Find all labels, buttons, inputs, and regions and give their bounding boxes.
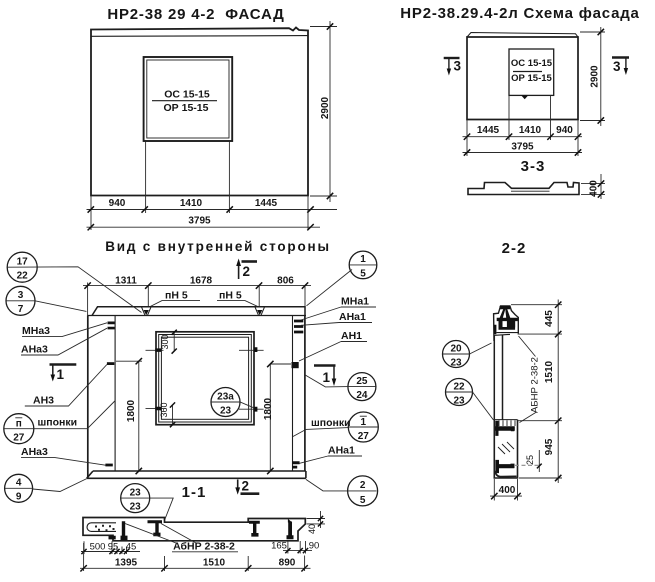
svg-text:1: 1 [57,367,65,382]
svg-text:4: 4 [16,478,22,489]
svg-text:АБНР 2-38-2: АБНР 2-38-2 [530,357,541,413]
svg-text:1-1: 1-1 [182,484,207,501]
svg-text:1: 1 [361,417,367,428]
svg-text:шпонки: шпонки [38,417,78,429]
svg-text:806: 806 [277,276,294,287]
svg-text:2: 2 [360,480,366,491]
svg-text:360: 360 [159,402,169,417]
svg-text:3795: 3795 [188,216,211,227]
svg-text:23: 23 [450,358,462,369]
svg-text:1800: 1800 [263,397,274,420]
svg-text:шпонки: шпонки [311,417,351,429]
svg-text:1395: 1395 [115,558,138,569]
svg-text:1510: 1510 [544,360,555,383]
svg-text:ОС 15-15: ОС 15-15 [164,89,210,101]
svg-text:25: 25 [525,455,535,465]
svg-text:3-3: 3-3 [521,158,546,175]
svg-text:165: 165 [271,541,287,552]
svg-text:1445: 1445 [255,198,278,209]
svg-text:23: 23 [220,406,232,417]
svg-text:23: 23 [130,502,142,513]
svg-text:90: 90 [309,541,320,552]
svg-text:24: 24 [356,390,368,401]
svg-text:3: 3 [613,59,621,74]
svg-text:2: 2 [243,264,251,279]
svg-text:1410: 1410 [519,125,542,136]
svg-text:1311: 1311 [115,276,137,287]
svg-text:1800: 1800 [126,399,137,422]
svg-text:1510: 1510 [203,558,226,569]
svg-text:940: 940 [556,125,573,136]
svg-text:Вид с внутренней стороны: Вид с внутренней стороны [105,239,331,254]
svg-text:3: 3 [454,59,462,74]
svg-text:АНа3: АНа3 [21,446,48,458]
svg-text:2: 2 [242,479,250,494]
svg-text:2-2: 2-2 [502,240,527,257]
svg-text:3: 3 [18,290,24,301]
svg-text:пН 5: пН 5 [165,290,188,302]
svg-text:АбНР 2-38-2: АбНР 2-38-2 [173,541,235,553]
svg-text:п: п [16,419,22,430]
svg-text:23: 23 [453,396,465,407]
svg-text:445: 445 [544,310,555,327]
svg-text:1445: 1445 [477,125,500,136]
svg-text:1: 1 [360,254,366,265]
svg-text:400: 400 [499,485,516,496]
svg-text:45: 45 [126,542,137,553]
svg-text:400: 400 [589,180,600,197]
svg-text:5: 5 [360,495,366,506]
svg-text:9: 9 [16,492,22,503]
svg-text:1678: 1678 [190,276,213,287]
svg-text:НР2-38 29 4-2 ФАСАД: НР2-38 29 4-2 ФАСАД [107,6,284,23]
svg-text:890: 890 [279,558,296,569]
svg-text:ОС 15-15: ОС 15-15 [511,58,553,69]
svg-text:7: 7 [18,304,24,315]
svg-text:27: 27 [358,431,370,442]
svg-text:27: 27 [13,433,25,444]
svg-text:22: 22 [453,381,465,392]
svg-text:500: 500 [90,542,106,553]
svg-text:3795: 3795 [511,142,534,153]
svg-text:23: 23 [130,487,142,498]
svg-text:95: 95 [108,542,119,553]
svg-text:40: 40 [307,524,317,534]
svg-text:АН3: АН3 [33,395,54,407]
svg-text:300: 300 [160,334,170,349]
svg-text:АНа1: АНа1 [328,445,355,457]
svg-text:23а: 23а [217,391,234,402]
svg-text:НР2-38.29.4-2л Схема фасада: НР2-38.29.4-2л Схема фасада [400,5,639,22]
svg-text:1: 1 [323,370,331,385]
svg-text:пН 5: пН 5 [219,290,242,302]
svg-text:945: 945 [544,438,555,455]
svg-text:АН1: АН1 [341,330,362,342]
svg-text:1410: 1410 [180,198,203,209]
svg-text:ОР 15-15: ОР 15-15 [164,102,209,114]
svg-text:17: 17 [17,257,29,268]
svg-text:АНа3: АНа3 [21,344,48,356]
svg-text:МНа3: МНа3 [22,325,50,337]
svg-text:2900: 2900 [590,65,601,88]
svg-text:940: 940 [109,198,126,209]
svg-text:МНа1: МНа1 [341,296,369,308]
svg-text:20: 20 [450,343,462,354]
svg-text:2900: 2900 [320,96,331,119]
svg-text:22: 22 [17,271,29,282]
svg-text:ОР 15-15: ОР 15-15 [511,73,552,84]
svg-text:5: 5 [360,269,366,280]
svg-text:АНа1: АНа1 [339,311,366,323]
svg-text:25: 25 [356,376,368,387]
